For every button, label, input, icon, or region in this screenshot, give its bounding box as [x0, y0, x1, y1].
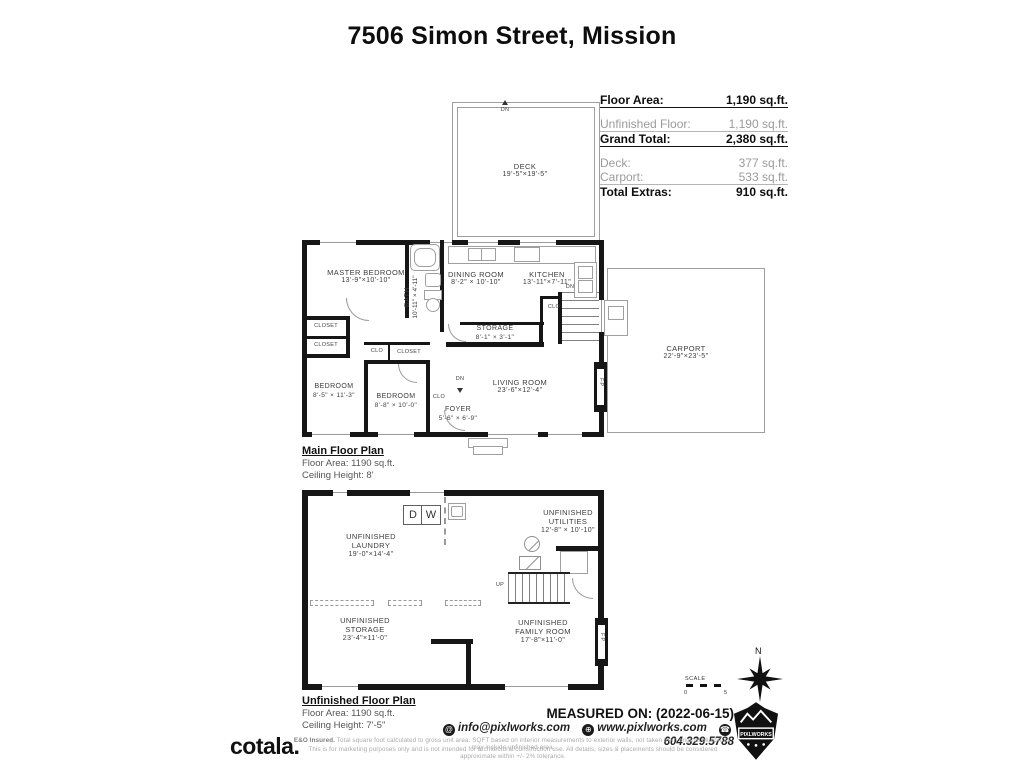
deck-dn-label: DN — [495, 107, 515, 113]
caption-area: Floor Area: 1190 sq.ft. — [302, 708, 416, 720]
area-label: Carport: — [600, 170, 643, 184]
caption-ceiling: Ceiling Height: 8' — [302, 470, 395, 482]
spacer — [600, 147, 788, 156]
room-label-storage: STORAGE 8'-1" × 3'-1" — [455, 325, 535, 342]
closet-label: CLO — [366, 348, 388, 354]
room-label-bath: BATH 10'-11" × 4'-11" — [404, 262, 426, 332]
area-value: 533 sq.ft. — [739, 170, 788, 184]
area-label: Grand Total: — [600, 132, 670, 146]
room-label-bedroom: BEDROOM 8'-8" × 10'-0" — [364, 393, 428, 410]
room-dims: 8'-5" × 11'-3" — [302, 392, 366, 400]
room-label-unfinished-family-room: UNFINISHED FAMILY ROOM 17'-8"×11'-0" — [493, 618, 593, 646]
wall-segment — [302, 354, 350, 358]
room-label-unfinished-utilities: UNFINISHED UTILITIES 12'-8" × 10'-10" — [518, 508, 618, 536]
toilet-bowl — [426, 298, 440, 312]
wall-segment — [346, 316, 350, 358]
room-name: UNFINISHED — [321, 532, 421, 541]
room-name: LAUNDRY — [321, 541, 421, 550]
unfinished-wall-marker — [445, 600, 481, 606]
entry-step — [473, 446, 503, 455]
wall-segment — [364, 360, 430, 364]
room-label-bedroom: BEDROOM 8'-5" × 11'-3" — [302, 383, 366, 400]
area-value: 2,380 sq.ft. — [726, 132, 788, 146]
washer-label: W — [426, 509, 436, 521]
room-name: UNFINISHED — [315, 616, 415, 625]
area-row-deck: Deck: 377 sq.ft. — [600, 156, 788, 170]
room-dims: 23'-6"×12'-4" — [460, 387, 580, 396]
area-row-grand-total: Grand Total: 2,380 sq.ft. — [600, 132, 788, 147]
compass-north-label: N — [755, 646, 762, 656]
room-label-kitchen: KITCHEN 13'-11"×7'-11" — [502, 270, 592, 288]
window-marker — [322, 684, 358, 690]
window-marker — [548, 432, 582, 437]
area-value: 1,190 sq.ft. — [729, 117, 788, 131]
area-value: 377 sq.ft. — [739, 156, 788, 170]
dryer-box: D — [403, 505, 423, 525]
main-floor-caption: Main Floor Plan Floor Area: 1190 sq.ft. … — [302, 444, 395, 482]
window-marker — [378, 432, 414, 437]
wall-segment — [540, 296, 543, 322]
area-value: 1,190 sq.ft. — [726, 93, 788, 107]
scale-label: SCALE — [685, 676, 706, 682]
closet-label: CLOSET — [390, 349, 428, 355]
room-label-foyer: FOYER 5'-6" × 6'-9" — [432, 406, 484, 423]
window-marker — [488, 432, 538, 437]
spacer — [600, 108, 788, 117]
page-title: 7506 Simon Street, Mission — [0, 22, 1024, 51]
room-dims: 19'-0"×14'-4" — [321, 551, 421, 560]
room-name: LIVING ROOM — [460, 378, 580, 387]
window-marker — [505, 684, 568, 690]
window-marker — [410, 490, 444, 496]
wall-segment — [466, 639, 471, 684]
area-label: Total Extras: — [600, 185, 672, 199]
room-dims: 13'-11"×7'-11" — [502, 279, 592, 288]
wall-segment — [302, 490, 604, 496]
stove — [514, 247, 540, 262]
room-label-living-room: LIVING ROOM 23'-6"×12'-4" — [460, 378, 580, 396]
area-row-total-extras: Total Extras: 910 sq.ft. — [600, 185, 788, 199]
area-label: Floor Area: — [600, 93, 664, 107]
room-dims: 10'-11" × 4'-11" — [412, 262, 420, 332]
email-icon: @ — [443, 724, 455, 736]
fireplace-label: FP — [598, 378, 604, 387]
stair-winders — [560, 551, 588, 574]
deck-stair-arrow-icon — [502, 100, 508, 105]
dryer-label: D — [409, 509, 417, 521]
website-text: www.pixlworks.com — [597, 722, 707, 734]
room-name: DECK — [465, 162, 585, 171]
room-dims: 8'-8" × 10'-0" — [364, 402, 428, 410]
area-row-unfinished: Unfinished Floor: 1,190 sq.ft. — [600, 117, 788, 132]
room-label-unfinished-storage: UNFINISHED STORAGE 23'-4"×11'-0" — [315, 616, 415, 644]
water-heater — [524, 536, 540, 552]
room-label-master-bedroom: MASTER BEDROOM 13'-9"×10'-10" — [316, 268, 416, 286]
room-dims: 8'-1" × 3'-1" — [455, 334, 535, 342]
room-name: STORAGE — [315, 625, 415, 634]
fireplace-label: FP — [599, 633, 605, 642]
wall-segment — [364, 342, 430, 345]
foyer-stair-arrow-icon — [457, 388, 463, 393]
scale-bar — [686, 684, 728, 687]
disclaimer-text: This is for marketing purposes only and … — [308, 746, 717, 760]
unfinished-wall-marker — [310, 600, 374, 606]
closet-label: CLOSET — [306, 342, 346, 348]
wall-segment — [539, 322, 543, 347]
window-marker — [312, 432, 350, 437]
room-name: UNFINISHED — [518, 508, 618, 517]
scale-start: 0 — [684, 690, 688, 696]
unfinished-partition-dashed — [444, 497, 446, 545]
room-name: MASTER BEDROOM — [316, 268, 416, 277]
caption-title: Unfinished Floor Plan — [302, 694, 416, 708]
wall-segment — [446, 342, 544, 347]
phone-icon: ☎ — [719, 724, 731, 736]
room-dims: 19'-5"×19'-5" — [465, 171, 585, 180]
foyer-dn-label: DN — [450, 376, 470, 382]
area-label: Unfinished Floor: — [600, 117, 691, 131]
globe-icon: ⊕ — [582, 724, 594, 736]
room-dims: 23'-4"×11'-0" — [315, 635, 415, 644]
room-name: CARPORT — [626, 344, 746, 353]
email-text: info@pixlworks.com — [458, 722, 570, 734]
furnace — [519, 556, 541, 570]
area-row-carport: Carport: 533 sq.ft. — [600, 170, 788, 185]
laundry-tub-inner — [451, 506, 463, 517]
room-dims: 22'-9"×23'-5" — [626, 353, 746, 362]
window-marker — [520, 240, 556, 245]
room-dims: 13'-9"×10'-10" — [316, 277, 416, 286]
room-name: FOYER — [432, 406, 484, 415]
room-dims: 17'-8"×11'-0" — [493, 637, 593, 646]
stairs-up — [508, 572, 570, 604]
landing-steps-inner — [608, 306, 624, 320]
room-label-deck: DECK 19'-5"×19'-5" — [465, 162, 585, 180]
room-name: BEDROOM — [302, 383, 366, 392]
measured-on: MEASURED ON: (2022-06-15) — [430, 706, 734, 721]
window-marker — [320, 240, 356, 245]
room-name: STORAGE — [455, 325, 535, 334]
room-dims: 5'-6" × 6'-9" — [432, 415, 484, 423]
room-name: UTILITIES — [518, 517, 618, 526]
closet-label: CLO — [544, 304, 564, 310]
stairs-up-label: UP — [492, 582, 508, 588]
disclaimer-line: This is for marketing purposes only and … — [292, 746, 734, 760]
compass-rose-icon — [737, 656, 783, 702]
closet-label: CLO — [429, 394, 449, 400]
room-name: BEDROOM — [364, 393, 428, 402]
wall-segment — [302, 336, 350, 339]
area-row-floor-area: Floor Area: 1,190 sq.ft. — [600, 93, 788, 108]
wall-segment — [302, 316, 350, 320]
area-value: 910 sq.ft. — [736, 185, 788, 199]
room-dims: 12'-8" × 10'-10" — [518, 527, 618, 536]
pixlworks-badge-logo: PIXLWORKS — [733, 701, 779, 761]
disclaimer-prefix: E&O Insured. — [294, 737, 335, 744]
room-name: BATH — [404, 262, 412, 332]
kitchen-sink — [481, 248, 496, 261]
stairs-down — [562, 292, 599, 344]
room-name: KITCHEN — [502, 270, 592, 279]
area-summary-table: Floor Area: 1,190 sq.ft. Unfinished Floo… — [600, 93, 788, 199]
svg-text:PIXLWORKS: PIXLWORKS — [740, 732, 772, 738]
window-marker — [333, 490, 347, 496]
caption-title: Main Floor Plan — [302, 444, 395, 458]
wall-segment — [302, 490, 308, 690]
room-name: UNFINISHED — [493, 618, 593, 627]
door-swing-arc — [572, 578, 593, 599]
window-marker — [468, 240, 498, 245]
room-label-carport: CARPORT 22'-9"×23'-5" — [626, 344, 746, 362]
unfinished-wall-marker — [388, 600, 422, 606]
room-label-unfinished-laundry: UNFINISHED LAUNDRY 19'-0"×14'-4" — [321, 532, 421, 560]
caption-area: Floor Area: 1190 sq.ft. — [302, 458, 395, 470]
washer-box: W — [421, 505, 441, 525]
door-swing-arc — [398, 364, 417, 383]
cotala-logo: cotala. — [230, 733, 299, 760]
scale-end: 5 — [724, 690, 728, 696]
area-label: Deck: — [600, 156, 631, 170]
closet-label: CLOSET — [306, 323, 346, 329]
room-name: FAMILY ROOM — [493, 627, 593, 636]
